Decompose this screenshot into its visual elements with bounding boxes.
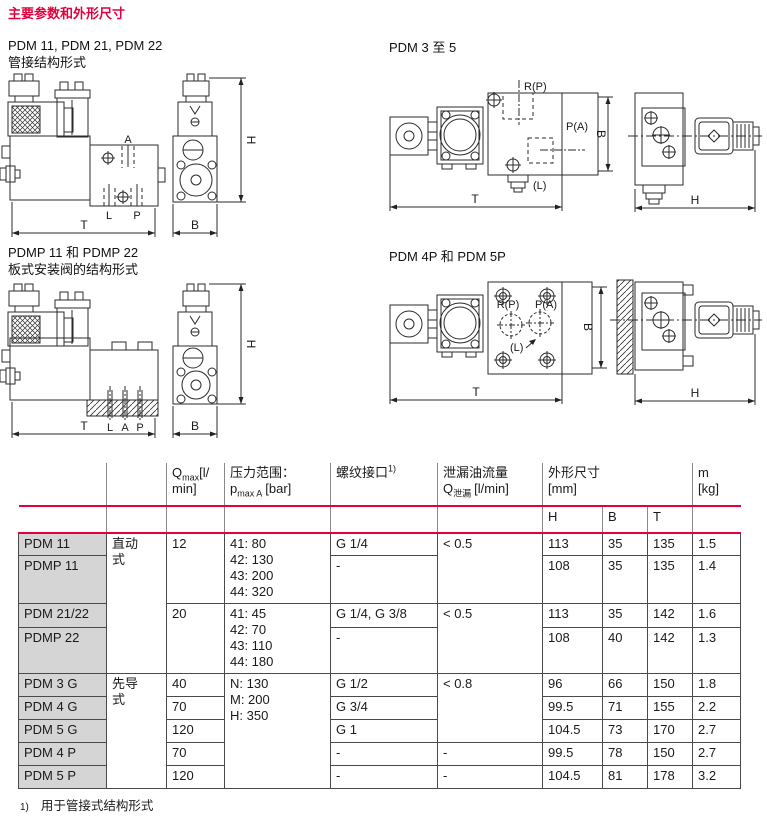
cell-mass: 1.5 — [693, 533, 741, 555]
port-label-p: P — [133, 210, 140, 222]
cell-qmax: 40 — [167, 673, 225, 696]
cell-leak: < 0.5 — [438, 533, 543, 603]
cell-qmax: 70 — [167, 742, 225, 765]
dim-label-t: T — [472, 385, 480, 399]
cell-h: 113 — [543, 533, 603, 555]
cell-leak: - — [438, 742, 543, 765]
cell-mass: 2.2 — [693, 696, 741, 719]
dim-label-h: H — [244, 136, 258, 145]
cell-qmax: 120 — [167, 719, 225, 742]
cell-thread: G 1/2 — [331, 673, 438, 696]
cell-b: 35 — [603, 533, 648, 555]
cell-t: 178 — [648, 765, 693, 788]
header-qmax: Qmax[l/min] — [167, 463, 225, 506]
page-title: 主要参数和外形尺寸 — [8, 3, 125, 22]
subheader-t: T — [648, 506, 693, 533]
cell-b: 35 — [603, 603, 648, 627]
datasheet-page: 主要参数和外形尺寸 PDM 11, PDM 21, PDM 22 管接结构形式 … — [0, 0, 767, 824]
figure3-caption-line1: PDMP 11 和 PDMP 22 — [8, 244, 138, 261]
dim-label-h: H — [244, 340, 258, 349]
cell-model: PDM 11 — [19, 533, 107, 555]
cell-qmax: 12 — [167, 533, 225, 603]
subheader-b: B — [603, 506, 648, 533]
figure1-caption: PDM 11, PDM 21, PDM 22 管接结构形式 — [8, 37, 162, 71]
cell-model: PDM 3 G — [19, 673, 107, 696]
cell-model: PDM 5 P — [19, 765, 107, 788]
header-thread: 螺纹接口1) — [331, 463, 438, 506]
cell-h: 99.5 — [543, 696, 603, 719]
cell-model: PDM 4 P — [19, 742, 107, 765]
cell-h: 96 — [543, 673, 603, 696]
cell-pressure: 41: 80 42: 130 43: 200 44: 320 — [225, 533, 331, 603]
cell-mass: 1.4 — [693, 555, 741, 603]
cell-leak: < 0.8 — [438, 673, 543, 742]
cell-h: 113 — [543, 603, 603, 627]
table-header-row: Qmax[l/min] 压力范围：pmax A[bar] 螺纹接口1) 泄漏油流… — [19, 463, 741, 506]
subheader-h: H — [543, 506, 603, 533]
header-dims: 外形尺寸[mm] — [543, 463, 693, 506]
table-subheader-row: H B T — [19, 506, 741, 533]
cell-t: 135 — [648, 533, 693, 555]
figure2-caption: PDM 3 至 5 — [389, 39, 456, 56]
figure-pdmp11-22-drawing: L A P T B H — [0, 278, 260, 442]
cell-b: 35 — [603, 555, 648, 603]
cell-mass: 1.6 — [693, 603, 741, 627]
cell-thread: G 1 — [331, 719, 438, 742]
dim-label-t: T — [471, 192, 479, 206]
cell-h: 108 — [543, 627, 603, 673]
port-label-p: P — [136, 422, 143, 434]
cell-mass: 3.2 — [693, 765, 741, 788]
header-model-blank — [19, 463, 107, 506]
cell-b: 66 — [603, 673, 648, 696]
figure1-caption-line2: 管接结构形式 — [8, 54, 162, 71]
cell-b: 78 — [603, 742, 648, 765]
figure1-caption-line1: PDM 11, PDM 21, PDM 22 — [8, 37, 162, 54]
port-label-l: L — [107, 422, 113, 434]
cell-model: PDM 21/22 — [19, 603, 107, 627]
cell-mass: 1.8 — [693, 673, 741, 696]
cell-model: PDM 4 G — [19, 696, 107, 719]
cell-h: 108 — [543, 555, 603, 603]
dim-label-b: B — [594, 130, 608, 138]
figure-pdm4p-5p-drawing: R(P) P(A) (L) T B H — [380, 255, 767, 410]
header-leak: 泄漏油流量Q泄漏[l/min] — [438, 463, 543, 506]
port-label-pa: P(A) — [566, 121, 588, 133]
figure-pdm3-5-drawing: R(P) P(A) (L) T B H — [380, 78, 767, 218]
port-label-rp: R(P) — [497, 299, 520, 311]
cell-thread: - — [331, 555, 438, 603]
dim-label-b: B — [191, 419, 199, 433]
cell-qmax: 70 — [167, 696, 225, 719]
cell-pressure: 41: 45 42: 70 43: 110 44: 180 — [225, 603, 331, 673]
cell-model: PDM 5 G — [19, 719, 107, 742]
header-type-blank — [107, 463, 167, 506]
cell-model: PDMP 22 — [19, 627, 107, 673]
table-row: PDM 3 G 先导式 40 N: 130 M: 200 H: 350 G 1/… — [19, 673, 741, 696]
cell-qmax: 20 — [167, 603, 225, 673]
footnote-text: 用于管接式结构形式 — [41, 799, 154, 813]
cell-type: 先导式 — [107, 673, 167, 788]
cell-thread: - — [331, 765, 438, 788]
port-label-a: A — [124, 134, 132, 146]
cell-t: 135 — [648, 555, 693, 603]
cell-thread: G 3/4 — [331, 696, 438, 719]
cell-h: 104.5 — [543, 765, 603, 788]
cell-t: 142 — [648, 627, 693, 673]
dim-label-t: T — [80, 218, 88, 232]
figure-pdm11-21-22-drawing: A L P T B H — [0, 70, 260, 242]
dim-label-t: T — [80, 419, 88, 433]
cell-model: PDMP 11 — [19, 555, 107, 603]
header-pressure: 压力范围：pmax A[bar] — [225, 463, 331, 506]
cell-t: 150 — [648, 673, 693, 696]
dim-label-h: H — [691, 386, 700, 400]
cell-t: 155 — [648, 696, 693, 719]
port-label-a: A — [121, 422, 129, 434]
cell-mass: 2.7 — [693, 719, 741, 742]
figure3-caption: PDMP 11 和 PDMP 22 板式安装阀的结构形式 — [8, 244, 138, 278]
cell-b: 73 — [603, 719, 648, 742]
cell-b: 71 — [603, 696, 648, 719]
port-label-pa: P(A) — [535, 299, 557, 311]
header-mass: m[kg] — [693, 463, 741, 506]
cell-b: 81 — [603, 765, 648, 788]
cell-h: 99.5 — [543, 742, 603, 765]
cell-thread: - — [331, 742, 438, 765]
footnote: 1)用于管接式结构形式 — [20, 795, 153, 814]
figure3-caption-line2: 板式安装阀的结构形式 — [8, 261, 138, 278]
cell-mass: 2.7 — [693, 742, 741, 765]
port-label-l: (L) — [533, 180, 546, 192]
spec-table: Qmax[l/min] 压力范围：pmax A[bar] 螺纹接口1) 泄漏油流… — [18, 463, 741, 789]
cell-thread: - — [331, 627, 438, 673]
cell-thread: G 1/4 — [331, 533, 438, 555]
footnote-marker: 1) — [20, 802, 29, 813]
port-label-rp: R(P) — [524, 81, 547, 93]
cell-leak: - — [438, 765, 543, 788]
cell-b: 40 — [603, 627, 648, 673]
cell-t: 150 — [648, 742, 693, 765]
port-label-l: L — [106, 210, 112, 222]
port-label-l: (L) — [510, 342, 523, 354]
cell-thread: G 1/4, G 3/8 — [331, 603, 438, 627]
cell-pressure: N: 130 M: 200 H: 350 — [225, 673, 331, 788]
cell-type: 直动式 — [107, 533, 167, 673]
cell-t: 142 — [648, 603, 693, 627]
dim-label-b: B — [581, 323, 595, 331]
figure2-caption-line1: PDM 3 至 5 — [389, 39, 456, 56]
cell-qmax: 120 — [167, 765, 225, 788]
cell-t: 170 — [648, 719, 693, 742]
cell-h: 104.5 — [543, 719, 603, 742]
cell-leak: < 0.5 — [438, 603, 543, 673]
cell-mass: 1.3 — [693, 627, 741, 673]
dim-label-b: B — [191, 218, 199, 232]
dim-label-h: H — [691, 193, 700, 207]
table-row: PDM 11 直动式 12 41: 80 42: 130 43: 200 44:… — [19, 533, 741, 555]
